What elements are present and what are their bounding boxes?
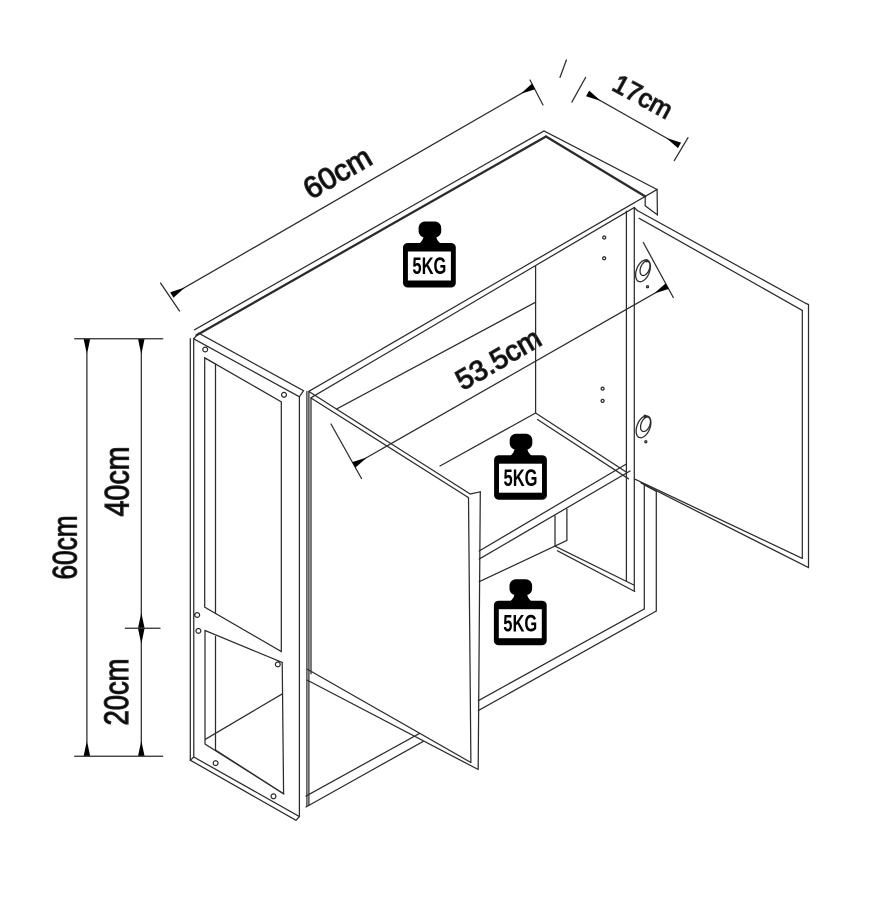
svg-text:60cm: 60cm (298, 141, 378, 206)
svg-text:5KG: 5KG (503, 611, 537, 638)
svg-text:5KG: 5KG (412, 253, 446, 280)
svg-text:5KG: 5KG (504, 465, 538, 492)
svg-text:60cm: 60cm (47, 516, 85, 580)
svg-text:20cm: 20cm (98, 659, 136, 726)
svg-text:40cm: 40cm (99, 447, 137, 517)
svg-text:17cm: 17cm (608, 68, 678, 125)
svg-text:53.5cm: 53.5cm (450, 322, 547, 397)
